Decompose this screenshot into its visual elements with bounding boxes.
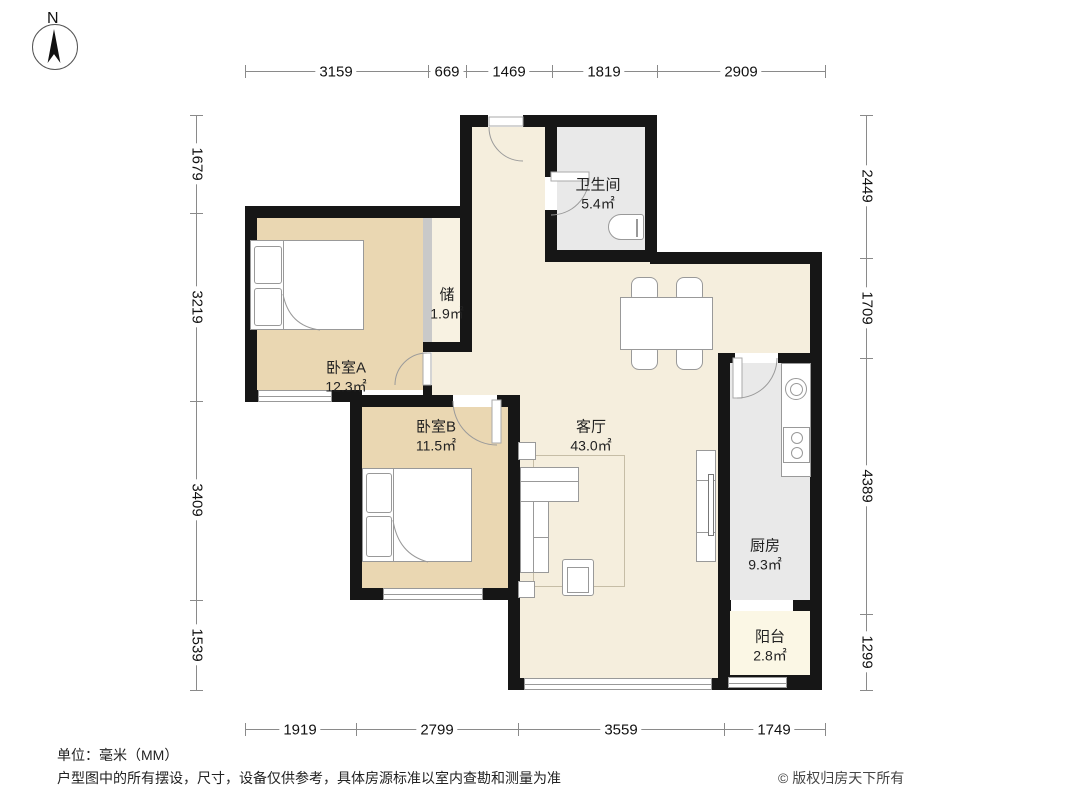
window bbox=[383, 588, 483, 600]
stove bbox=[783, 427, 810, 463]
room-label-bedroom-b: 卧室B 11.5㎡ bbox=[416, 419, 456, 456]
window bbox=[524, 678, 712, 690]
dim-label: 1919 bbox=[279, 722, 320, 739]
floor-plan-page: N 3159 669 1469 1819 2909 1919 2799 3559… bbox=[0, 0, 1066, 800]
door-leaf bbox=[423, 353, 431, 385]
dim-label: 3219 bbox=[189, 286, 206, 327]
wall bbox=[350, 395, 453, 407]
wall bbox=[483, 588, 520, 600]
tv-screen bbox=[708, 474, 714, 536]
room-label-living: 客厅 43.0㎡ bbox=[570, 419, 611, 456]
stove-burner bbox=[791, 432, 803, 444]
dim-label: 2799 bbox=[416, 722, 457, 739]
dim-label: 2449 bbox=[859, 165, 876, 206]
disclaimer: 户型图中的所有摆设，尺寸，设备仅供参考，具体房源标准以室内查勘和测量为准 bbox=[57, 768, 561, 788]
wall bbox=[645, 115, 657, 262]
dim-label: 1709 bbox=[859, 287, 876, 328]
dining-chair bbox=[631, 277, 658, 299]
wall bbox=[718, 600, 731, 611]
wall bbox=[245, 206, 472, 218]
dining-chair bbox=[676, 348, 703, 370]
room-label-storage: 储 1.9㎡ bbox=[430, 287, 463, 324]
sink-basin bbox=[790, 383, 803, 396]
dim-label: 669 bbox=[430, 64, 463, 81]
unit-note: 单位：毫米（MM） bbox=[57, 745, 178, 765]
dim-label: 1679 bbox=[189, 143, 206, 184]
duvet bbox=[393, 468, 472, 562]
dim-label: 3159 bbox=[315, 64, 356, 81]
pillow bbox=[366, 473, 392, 513]
stove-burner bbox=[791, 447, 803, 459]
dim-label: 3559 bbox=[600, 722, 641, 739]
dining-chair bbox=[676, 277, 703, 299]
toilet bbox=[608, 214, 644, 240]
room-label-balcony: 阳台 2.8㎡ bbox=[753, 629, 786, 666]
hallway-floor bbox=[472, 127, 545, 262]
dim-label: 1539 bbox=[189, 624, 206, 665]
duvet bbox=[283, 240, 364, 330]
wall bbox=[350, 588, 383, 600]
dim-label: 1469 bbox=[488, 64, 529, 81]
dim-label: 1819 bbox=[583, 64, 624, 81]
wall bbox=[523, 115, 657, 127]
dim-label: 3409 bbox=[189, 479, 206, 520]
wall bbox=[778, 353, 810, 363]
wall bbox=[545, 250, 657, 262]
wall bbox=[718, 353, 730, 690]
door-leaf bbox=[489, 117, 523, 126]
room-label-bathroom: 卫生间 5.4㎡ bbox=[575, 177, 620, 214]
dim-label: 2909 bbox=[720, 64, 761, 81]
dim-label: 4389 bbox=[859, 465, 876, 506]
wall bbox=[350, 395, 362, 600]
dining-table bbox=[620, 297, 713, 350]
dim-label: 1749 bbox=[753, 722, 794, 739]
pillow bbox=[254, 288, 282, 326]
copyright: © 版权归房天下所有 bbox=[778, 768, 904, 788]
side-table bbox=[518, 442, 536, 460]
side-table bbox=[518, 581, 535, 598]
pillow bbox=[366, 516, 392, 557]
dim-label: 1299 bbox=[859, 631, 876, 672]
wall bbox=[793, 600, 810, 611]
pillow bbox=[254, 246, 282, 284]
sofa-chaise bbox=[520, 467, 579, 502]
sofa bbox=[520, 501, 549, 573]
wall bbox=[423, 342, 472, 352]
wall bbox=[650, 252, 822, 264]
armchair bbox=[562, 559, 594, 596]
room-label-bedroom-a: 卧室A 12.3㎡ bbox=[325, 360, 366, 397]
window bbox=[728, 677, 787, 688]
dining-chair bbox=[631, 348, 658, 370]
window bbox=[258, 390, 332, 402]
wall bbox=[810, 252, 822, 690]
wall bbox=[545, 115, 557, 177]
compass: N bbox=[30, 8, 90, 74]
wall bbox=[508, 395, 520, 690]
room-label-kitchen: 厨房 9.3㎡ bbox=[748, 538, 781, 575]
